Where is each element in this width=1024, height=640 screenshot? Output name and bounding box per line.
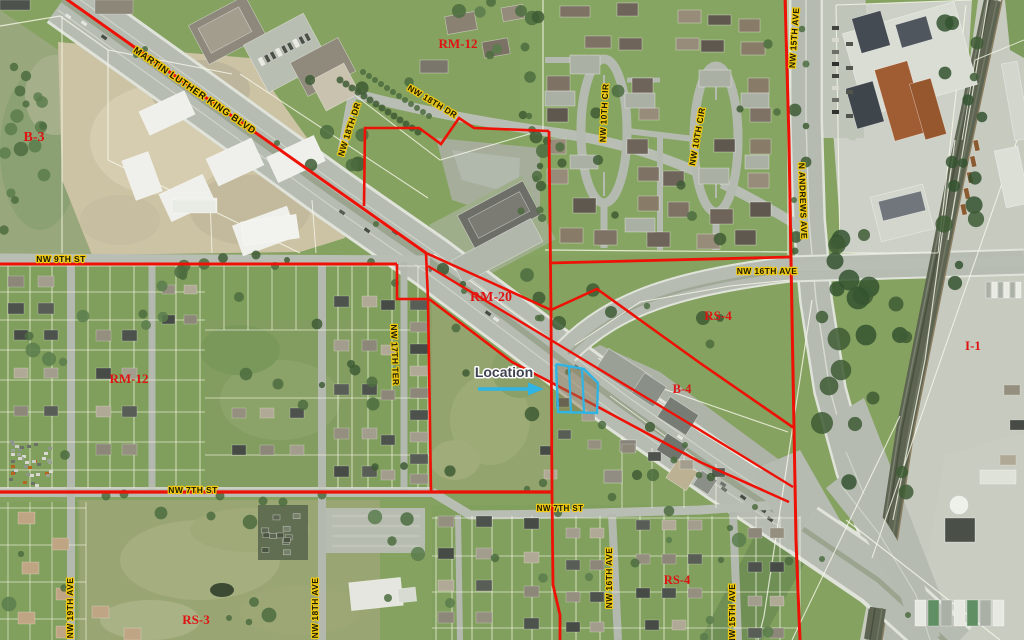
svg-text:RS-4: RS-4 [704,308,732,323]
svg-text:NW 18TH AVE: NW 18TH AVE [310,578,320,639]
svg-text:RM-20: RM-20 [470,290,512,305]
svg-text:RM-12: RM-12 [439,36,478,51]
svg-text:RS-4: RS-4 [664,573,691,587]
svg-text:NW 7TH ST: NW 7TH ST [168,485,218,495]
svg-text:B-3: B-3 [24,130,45,145]
svg-text:B-4: B-4 [673,382,693,396]
svg-text:NW 9TH ST: NW 9TH ST [36,254,86,264]
svg-text:NW 15TH AVE: NW 15TH AVE [727,584,737,640]
svg-text:NW 19TH AVE: NW 19TH AVE [65,578,75,639]
svg-text:RS-3: RS-3 [182,612,210,627]
svg-text:NW 7TH ST: NW 7TH ST [537,504,584,513]
svg-text:NW 16TH AVE: NW 16TH AVE [604,548,614,609]
svg-text:RM-12: RM-12 [110,371,149,386]
svg-text:I-1: I-1 [965,338,981,353]
svg-text:NW 17TH TER: NW 17TH TER [389,324,401,385]
svg-text:Location: Location [475,364,533,380]
svg-text:NW 16TH AVE: NW 16TH AVE [737,266,798,276]
